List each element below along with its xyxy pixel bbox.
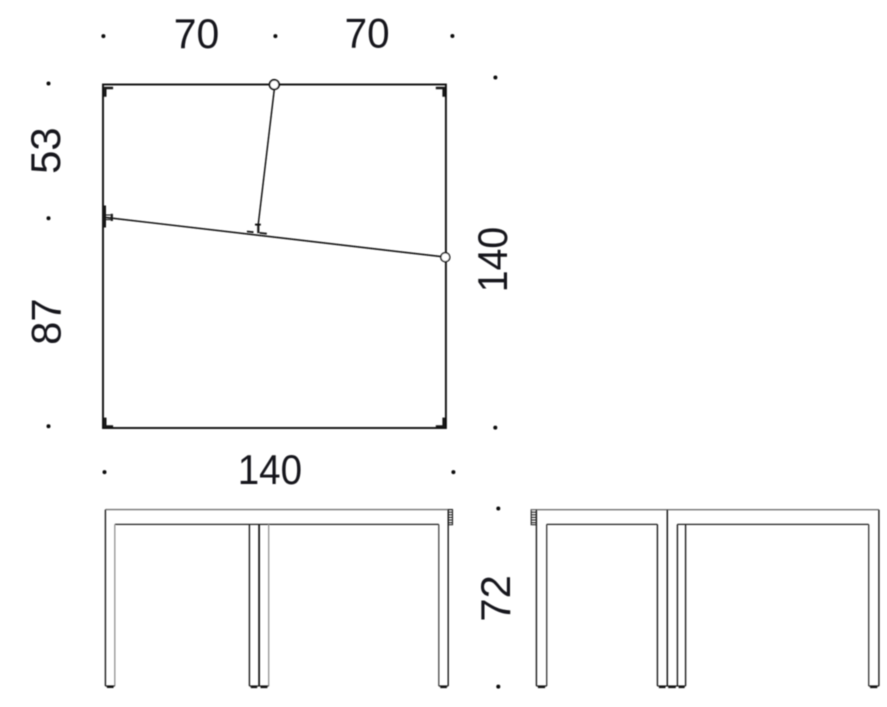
svg-text:70: 70 xyxy=(345,10,390,57)
svg-text:87: 87 xyxy=(23,298,70,345)
svg-text:140: 140 xyxy=(238,446,302,493)
svg-text:140: 140 xyxy=(469,227,516,293)
svg-text:72: 72 xyxy=(472,575,519,622)
svg-text:70: 70 xyxy=(174,10,220,57)
svg-text:53: 53 xyxy=(22,127,69,174)
